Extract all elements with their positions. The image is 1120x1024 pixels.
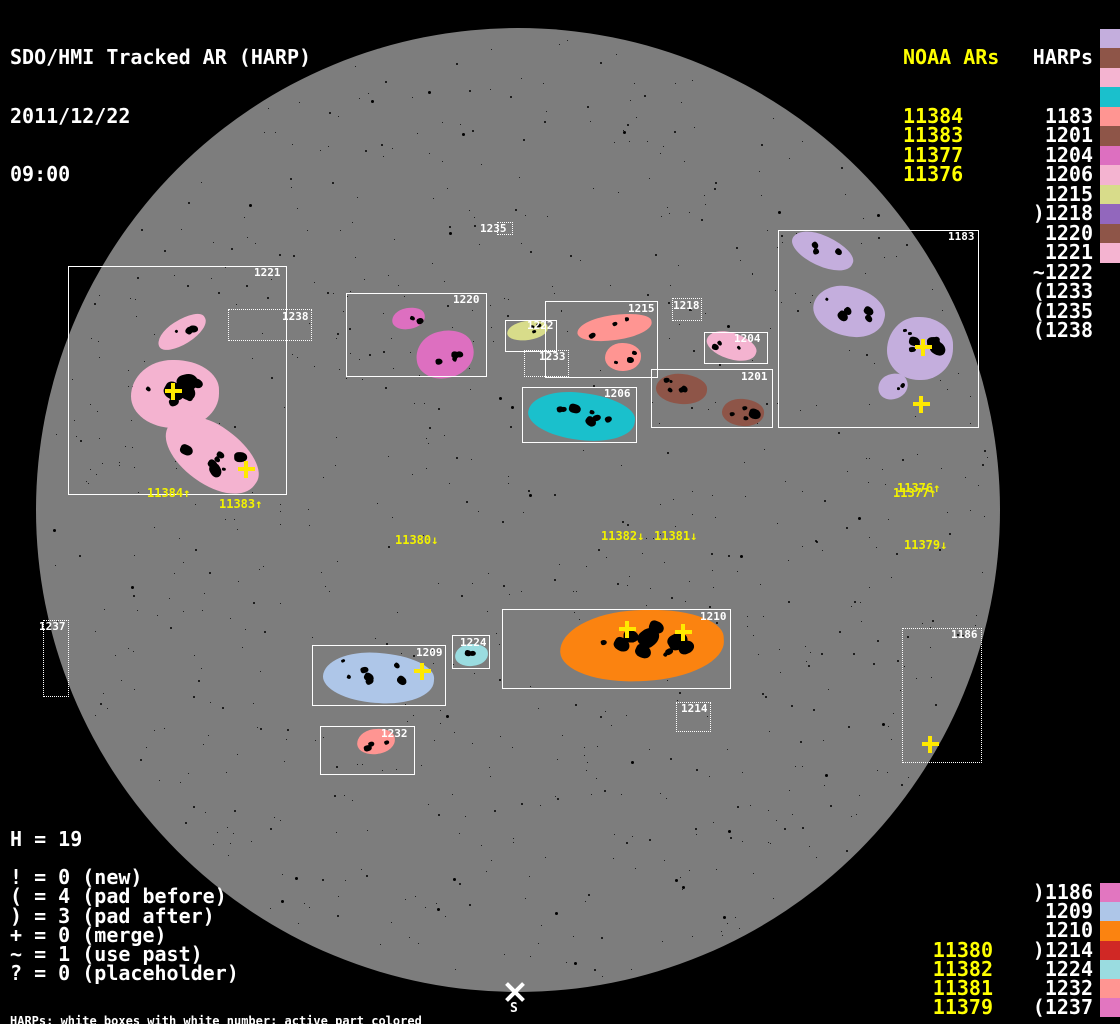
- speckle: [499, 397, 502, 400]
- south-pole-x-icon: [504, 981, 526, 1003]
- speckle: [121, 680, 122, 681]
- speckle: [154, 730, 155, 731]
- harp-tracking-view: 1221123812201222123312151218120412011183…: [0, 0, 1120, 1024]
- speckle: [424, 403, 425, 404]
- speckle: [877, 770, 878, 771]
- speckle: [897, 660, 899, 662]
- speckle: [366, 875, 368, 877]
- speckle: [234, 519, 235, 520]
- speckle: [806, 661, 807, 662]
- speckle: [508, 483, 509, 484]
- speckle: [760, 584, 761, 585]
- speckle: [292, 354, 293, 355]
- speckle: [704, 195, 705, 196]
- speckle: [169, 598, 170, 599]
- speckle: [789, 790, 790, 791]
- speckle: [679, 324, 680, 325]
- speckle: [792, 814, 793, 815]
- speckle: [412, 97, 413, 98]
- speckle: [140, 759, 142, 761]
- speckle: [768, 810, 769, 811]
- speckle: [230, 843, 231, 844]
- speckle: [507, 315, 509, 317]
- speckle: [413, 715, 414, 716]
- noaa-bottom-list: 11380113821138111379: [903, 941, 993, 1018]
- speckle: [768, 842, 769, 843]
- harp-color-swatch: [1100, 68, 1120, 88]
- harp-box-label: 1209: [416, 647, 443, 658]
- harp-color-swatch: [1100, 48, 1120, 68]
- speckle: [445, 916, 446, 917]
- speckle: [274, 817, 275, 818]
- speckle: [164, 250, 166, 252]
- speckle: [307, 230, 308, 231]
- speckle: [104, 609, 105, 610]
- speckle: [557, 759, 558, 760]
- speckle: [55, 565, 56, 566]
- speckle: [848, 726, 850, 728]
- speckle: [693, 350, 695, 352]
- speckle: [547, 216, 548, 217]
- title-block: SDO/HMI Tracked AR (HARP) 2011/12/22 09:…: [10, 9, 311, 224]
- speckle: [629, 141, 630, 142]
- speckle: [727, 923, 728, 924]
- speckle: [901, 784, 903, 786]
- speckle: [293, 255, 295, 257]
- time-label: 09:00: [10, 165, 311, 185]
- speckle: [695, 828, 697, 830]
- harp-box-label: 1218: [673, 300, 700, 311]
- speckle: [858, 517, 861, 520]
- speckle: [626, 715, 627, 716]
- speckle: [367, 830, 368, 831]
- speckle: [736, 247, 738, 249]
- speckle: [922, 623, 923, 624]
- speckle: [472, 583, 473, 584]
- speckle: [775, 290, 776, 291]
- speckle: [323, 477, 324, 478]
- speckle: [740, 555, 743, 558]
- speckle: [455, 969, 456, 970]
- speckle: [621, 465, 622, 466]
- harp-color-swatch: [1100, 960, 1120, 979]
- speckle: [115, 655, 116, 656]
- harp-box-label: 1238: [282, 311, 309, 322]
- speckle: [728, 830, 731, 833]
- speckle: [538, 943, 539, 944]
- speckle: [433, 198, 434, 199]
- speckle: [588, 894, 590, 896]
- speckle: [95, 631, 96, 632]
- south-label: S: [510, 1002, 518, 1015]
- speckle: [465, 816, 466, 817]
- speckle: [519, 177, 520, 178]
- noaa-disk-label: 11381↓: [654, 530, 697, 542]
- speckle: [538, 708, 539, 709]
- speckle: [491, 860, 492, 861]
- speckle: [562, 735, 563, 736]
- harp-color-swatch: [1100, 107, 1120, 127]
- speckle: [546, 111, 547, 112]
- harp-box-label: 1183: [948, 231, 975, 242]
- harp-color-swatch: [1100, 29, 1120, 49]
- speckle: [174, 573, 175, 574]
- speckle: [604, 790, 606, 792]
- speckle: [540, 805, 541, 806]
- h-count-line: H = 19: [10, 830, 82, 850]
- speckle: [447, 188, 448, 189]
- harp-box-label: 1215: [628, 303, 655, 314]
- noaa-cross-icon: [414, 663, 431, 680]
- speckle: [649, 839, 651, 841]
- speckle: [635, 868, 636, 869]
- speckle: [297, 357, 298, 358]
- speckle: [213, 242, 214, 243]
- harp-box-label: 1206: [604, 388, 631, 399]
- speckle: [776, 820, 777, 821]
- speckle: [730, 837, 732, 839]
- speckle: [769, 731, 770, 732]
- speckle: [525, 898, 526, 899]
- speckle: [438, 814, 440, 816]
- speckle: [566, 962, 567, 963]
- speckle: [859, 795, 860, 796]
- speckle: [692, 491, 693, 492]
- speckle: [661, 216, 662, 217]
- speckle: [511, 406, 514, 409]
- speckle: [623, 130, 624, 131]
- speckle: [644, 95, 646, 97]
- speckle: [280, 511, 281, 512]
- harp-box-label: 1232: [381, 728, 408, 739]
- speckle: [394, 239, 395, 240]
- speckle: [298, 923, 299, 924]
- speckle: [765, 696, 767, 698]
- noaa-list-item: 11379: [903, 998, 993, 1017]
- speckle: [713, 822, 714, 823]
- footnote-harps: HARPs: white boxes with white number; ac…: [10, 1015, 472, 1024]
- speckle: [510, 426, 512, 428]
- harp-box-label: 1220: [453, 294, 480, 305]
- speckle: [217, 832, 218, 833]
- harp-box-label: 1201: [741, 371, 768, 382]
- harp-list-item: (1238: [973, 321, 1093, 341]
- speckle: [785, 481, 786, 482]
- speckle: [752, 274, 753, 275]
- speckle: [605, 711, 606, 712]
- speckle: [260, 728, 262, 730]
- speckle: [502, 521, 504, 523]
- speckle: [381, 144, 383, 146]
- speckle: [715, 517, 716, 518]
- speckle: [554, 494, 556, 496]
- speckle: [103, 693, 104, 694]
- speckle: [863, 218, 864, 219]
- speckle: [500, 736, 501, 737]
- cross-vbar: [171, 383, 175, 400]
- speckle: [747, 626, 748, 627]
- speckle: [456, 63, 458, 65]
- harp-box-label: 1210: [700, 611, 727, 622]
- speckle: [329, 591, 330, 592]
- speckle: [670, 758, 672, 760]
- speckle: [917, 454, 918, 455]
- speckle: [758, 654, 759, 655]
- harp-color-swatch: [1100, 921, 1120, 940]
- speckle: [309, 907, 310, 908]
- speckle: [777, 523, 778, 524]
- speckle: [137, 610, 138, 611]
- speckle: [134, 555, 135, 556]
- speckle: [203, 744, 204, 745]
- speckle: [947, 512, 948, 513]
- speckle: [428, 91, 431, 94]
- speckle: [869, 537, 870, 538]
- speckle: [444, 435, 445, 436]
- speckle: [600, 716, 602, 718]
- speckle: [95, 715, 96, 716]
- speckle: [345, 880, 346, 881]
- speckle: [856, 814, 857, 815]
- speckle: [383, 156, 384, 157]
- speckle: [417, 133, 418, 134]
- speckle: [510, 96, 512, 98]
- speckle: [795, 766, 796, 767]
- harp-color-swatch: [1100, 883, 1120, 902]
- speckle: [767, 230, 768, 231]
- harp-swatch-column-top: [1100, 29, 1120, 263]
- speckle: [722, 935, 723, 936]
- speckle: [838, 432, 840, 434]
- speckle: [397, 612, 398, 613]
- speckle: [680, 877, 681, 878]
- harps-list-header: HARPs: [973, 48, 1093, 68]
- speckle: [325, 586, 326, 587]
- speckle: [490, 89, 491, 90]
- harp-color-swatch: [1100, 146, 1120, 166]
- speckle: [669, 213, 670, 214]
- speckle: [365, 150, 367, 152]
- speckle: [53, 529, 56, 532]
- harp-box-label: 1235: [480, 223, 507, 234]
- speckle: [585, 901, 586, 902]
- speckle: [281, 900, 284, 903]
- speckle: [242, 647, 243, 648]
- speckle: [614, 834, 615, 835]
- speckle: [471, 459, 472, 460]
- speckle: [646, 605, 647, 606]
- speckle: [675, 879, 678, 882]
- speckle: [694, 127, 695, 128]
- speckle: [460, 124, 461, 125]
- speckle: [823, 740, 824, 741]
- speckle: [660, 504, 661, 505]
- speckle: [761, 195, 762, 196]
- speckle: [675, 526, 676, 527]
- harp-color-swatch: [1100, 979, 1120, 998]
- cross-vbar: [928, 736, 932, 753]
- speckle: [689, 870, 690, 871]
- harp-box-label: 1221: [254, 267, 281, 278]
- speckle: [257, 727, 258, 728]
- speckle: [877, 640, 879, 642]
- speckle: [576, 591, 577, 592]
- speckle: [908, 777, 909, 778]
- harp-box-1186: [902, 628, 982, 763]
- noaa-disk-label: 11384↑: [147, 487, 190, 499]
- speckle: [621, 794, 622, 795]
- speckle: [583, 450, 584, 451]
- noaa-disk-label: 11377↑: [893, 487, 936, 499]
- speckle: [385, 387, 387, 389]
- speckle: [490, 776, 491, 777]
- speckle: [711, 553, 713, 555]
- speckle: [664, 562, 665, 563]
- speckle: [438, 583, 439, 584]
- speckle: [352, 800, 353, 801]
- harp-color-swatch: [1100, 243, 1120, 263]
- speckle: [308, 509, 309, 510]
- symbol-legend-row: ? = 0 (placeholder): [10, 964, 239, 983]
- speckle: [414, 403, 415, 404]
- harp-swatch-column-bottom: [1100, 883, 1120, 1017]
- speckle: [320, 150, 321, 151]
- speckle: [385, 81, 387, 83]
- speckle: [617, 583, 619, 585]
- speckle: [529, 494, 532, 497]
- cross-vbar: [625, 621, 629, 638]
- speckle: [466, 501, 468, 503]
- speckle: [521, 78, 522, 79]
- speckle: [343, 311, 344, 312]
- speckle: [601, 937, 603, 939]
- footnote-block: HARPs: white boxes with white number; ac…: [10, 990, 472, 1024]
- speckle: [398, 285, 399, 286]
- speckle: [280, 603, 281, 604]
- speckle: [251, 841, 252, 842]
- speckle: [747, 616, 748, 617]
- speckle: [891, 577, 892, 578]
- speckle: [327, 292, 329, 294]
- speckle: [314, 282, 315, 283]
- speckle: [932, 620, 934, 622]
- speckle: [405, 899, 406, 900]
- speckle: [513, 842, 514, 843]
- speckle: [442, 122, 443, 123]
- speckle: [253, 602, 255, 604]
- speckle: [596, 778, 597, 779]
- date-label: 2011/12/22: [10, 107, 311, 127]
- harp-box-label: 1237: [39, 621, 66, 632]
- harp-color-swatch: [1100, 204, 1120, 224]
- page-title: SDO/HMI Tracked AR (HARP): [10, 48, 311, 68]
- speckle: [255, 243, 256, 244]
- speckle: [391, 922, 392, 923]
- speckle: [237, 754, 238, 755]
- speckle: [941, 468, 942, 469]
- speckle: [247, 237, 248, 238]
- noaa-cross-icon: [619, 621, 636, 638]
- noaa-cross-icon: [913, 396, 930, 413]
- speckle: [437, 908, 440, 911]
- speckle: [701, 219, 703, 221]
- speckle: [846, 527, 848, 529]
- speckle: [418, 943, 419, 944]
- speckle: [193, 696, 195, 698]
- speckle: [238, 581, 239, 582]
- speckle: [712, 495, 713, 496]
- speckle: [674, 131, 676, 133]
- speckle: [586, 566, 587, 567]
- speckle: [478, 511, 479, 512]
- speckle: [866, 458, 867, 459]
- speckle: [494, 810, 496, 812]
- cross-vbar: [681, 624, 685, 641]
- speckle: [195, 549, 197, 551]
- speckle: [709, 776, 710, 777]
- speckle: [361, 869, 362, 870]
- speckle: [428, 443, 429, 444]
- noaa-disk-label: 11380↓: [395, 534, 438, 546]
- speckle: [802, 141, 803, 142]
- harp-color-swatch: [1100, 941, 1120, 960]
- noaa-cross-icon: [675, 624, 692, 641]
- harp-box-1210: [502, 609, 731, 689]
- speckle: [469, 904, 471, 906]
- speckle: [647, 141, 648, 142]
- speckle: [631, 761, 634, 764]
- speckle: [231, 248, 233, 250]
- speckle: [824, 500, 826, 502]
- speckle: [602, 976, 603, 977]
- speckle: [509, 594, 510, 595]
- cross-vbar: [420, 663, 424, 680]
- cross-vbar: [244, 461, 248, 478]
- speckle: [141, 229, 143, 231]
- speckle: [201, 668, 202, 669]
- harp-box-label: 1214: [681, 703, 708, 714]
- speckle: [314, 366, 315, 367]
- speckle: [570, 255, 572, 257]
- speckle: [752, 273, 753, 274]
- speckle: [655, 254, 657, 256]
- speckle: [586, 770, 587, 771]
- speckle: [689, 581, 690, 582]
- harp-color-swatch: [1100, 87, 1120, 107]
- speckle: [559, 44, 560, 45]
- speckle: [377, 503, 378, 504]
- harp-color-swatch: [1100, 126, 1120, 146]
- speckle: [183, 611, 184, 612]
- speckle: [279, 254, 281, 256]
- speckle: [778, 211, 781, 214]
- speckle: [355, 257, 356, 258]
- speckle: [629, 576, 630, 577]
- cross-vbar: [921, 339, 925, 356]
- speckle: [195, 504, 196, 505]
- speckle: [709, 606, 711, 608]
- symbol-legend: ! = 0 (new)( = 4 (pad before)) = 3 (pad …: [10, 868, 239, 984]
- noaa-cross-icon: [915, 339, 932, 356]
- speckle: [449, 483, 450, 484]
- speckle: [976, 615, 977, 616]
- speckle: [594, 969, 596, 971]
- speckle: [474, 217, 475, 218]
- harp-box-1183: [778, 230, 979, 428]
- speckle: [334, 795, 336, 797]
- speckle: [208, 735, 209, 736]
- speckle: [462, 133, 465, 136]
